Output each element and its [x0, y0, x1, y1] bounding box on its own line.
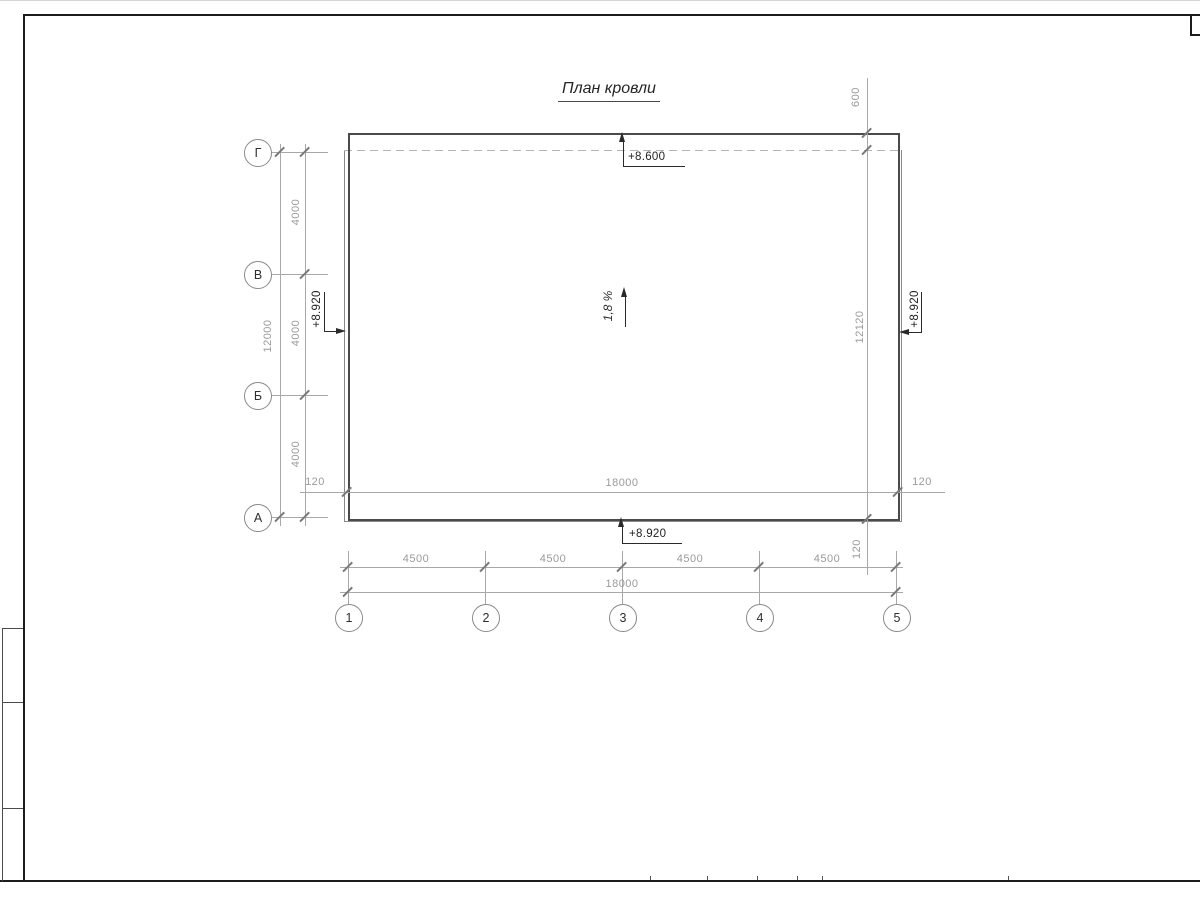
dim-value-4000: 4000	[289, 434, 303, 474]
axis-extension-line	[485, 551, 486, 604]
slope-value: 1,8 %	[601, 281, 615, 331]
elevation-underline	[623, 166, 685, 167]
elevation-arrow-icon	[618, 517, 624, 527]
grid-axis-label: 2	[483, 611, 490, 625]
grid-axis-bubble-3: 3	[609, 604, 637, 632]
elevation-arrow-icon	[899, 329, 909, 335]
margin-column-line	[2, 628, 3, 881]
dim-value-120-left: 120	[295, 476, 335, 488]
dim-value-600: 600	[849, 77, 863, 117]
title-block-stub	[822, 876, 823, 880]
dim-value-12120: 12120	[853, 297, 867, 357]
dim-value-4000: 4000	[289, 313, 303, 353]
frame-top-border	[23, 14, 1200, 16]
dim-value-4500: 4500	[802, 553, 852, 565]
grid-axis-bubble-g: Г	[244, 139, 272, 167]
elevation-leader-line	[623, 140, 624, 166]
dim-value-18000-width: 18000	[592, 477, 652, 489]
elevation-arrow-icon	[336, 328, 346, 334]
grid-axis-bubble-b: Б	[244, 382, 272, 410]
margin-column-divider	[2, 808, 23, 809]
grid-axis-label: Б	[254, 389, 262, 403]
axis-extension-line	[759, 551, 760, 604]
dim-value-4500: 4500	[528, 553, 578, 565]
elevation-underline	[921, 292, 922, 332]
grid-axis-bubble-4: 4	[746, 604, 774, 632]
drawing-title: План кровли	[558, 80, 660, 102]
title-block-stub	[797, 876, 798, 880]
title-block-stub	[1008, 876, 1009, 880]
grid-axis-label: 3	[620, 611, 627, 625]
dim-value-120-right: 120	[902, 476, 942, 488]
elevation-underline	[324, 292, 325, 331]
dim-value-4500: 4500	[391, 553, 441, 565]
frame-bottom-border	[0, 880, 1200, 882]
slope-arrow-line	[625, 293, 626, 327]
axis-extension-line	[270, 395, 328, 396]
dimension-line-width	[300, 492, 945, 493]
grid-axis-label: 4	[757, 611, 764, 625]
grid-axis-label: А	[254, 511, 262, 525]
grid-axis-bubble-1: 1	[335, 604, 363, 632]
dim-value-120-bottom: 120	[850, 529, 864, 569]
title-block-stub	[650, 876, 651, 880]
dimension-line-left-segments	[305, 144, 306, 526]
elevation-underline	[622, 543, 682, 544]
slope-arrow-icon	[621, 287, 627, 297]
title-block-stub	[757, 876, 758, 880]
dimension-line-left-total	[280, 144, 281, 526]
grid-axis-bubble-2: 2	[472, 604, 500, 632]
grid-axis-label: В	[254, 268, 262, 282]
dim-value-18000-bottom: 18000	[592, 578, 652, 590]
grid-axis-bubble-v: В	[244, 261, 272, 289]
elevation-value-right: +8.920	[908, 274, 922, 344]
grid-axis-bubble-a: А	[244, 504, 272, 532]
axis-extension-line	[348, 551, 349, 604]
dimension-line-bottom-total	[340, 592, 903, 593]
elevation-leader-line	[622, 525, 623, 543]
dim-value-4500: 4500	[665, 553, 715, 565]
margin-column-divider	[2, 628, 23, 629]
roof-outline	[348, 133, 900, 521]
grid-axis-label: 1	[346, 611, 353, 625]
elevation-value-left: +8.920	[310, 274, 324, 344]
title-block-stub	[707, 876, 708, 880]
margin-column-divider	[2, 702, 23, 703]
grid-axis-label: Г	[255, 146, 262, 160]
frame-corner-box	[1190, 16, 1200, 36]
axis-extension-line	[896, 551, 897, 604]
paper-edge-line	[0, 0, 1200, 1]
elevation-arrow-icon	[619, 132, 625, 142]
frame-left-border	[23, 14, 25, 882]
elevation-value-bottom: +8.920	[629, 528, 666, 540]
grid-axis-bubble-5: 5	[883, 604, 911, 632]
elevation-leader-line	[909, 332, 922, 333]
drawing-sheet: План кровли Г В Б А 4000 4000 4000 12000…	[0, 0, 1200, 900]
elevation-value-top: +8.600	[628, 151, 665, 163]
dim-value-4000: 4000	[289, 192, 303, 232]
dimension-line-right	[867, 78, 868, 575]
grid-axis-label: 5	[894, 611, 901, 625]
dim-value-12000: 12000	[261, 306, 275, 366]
